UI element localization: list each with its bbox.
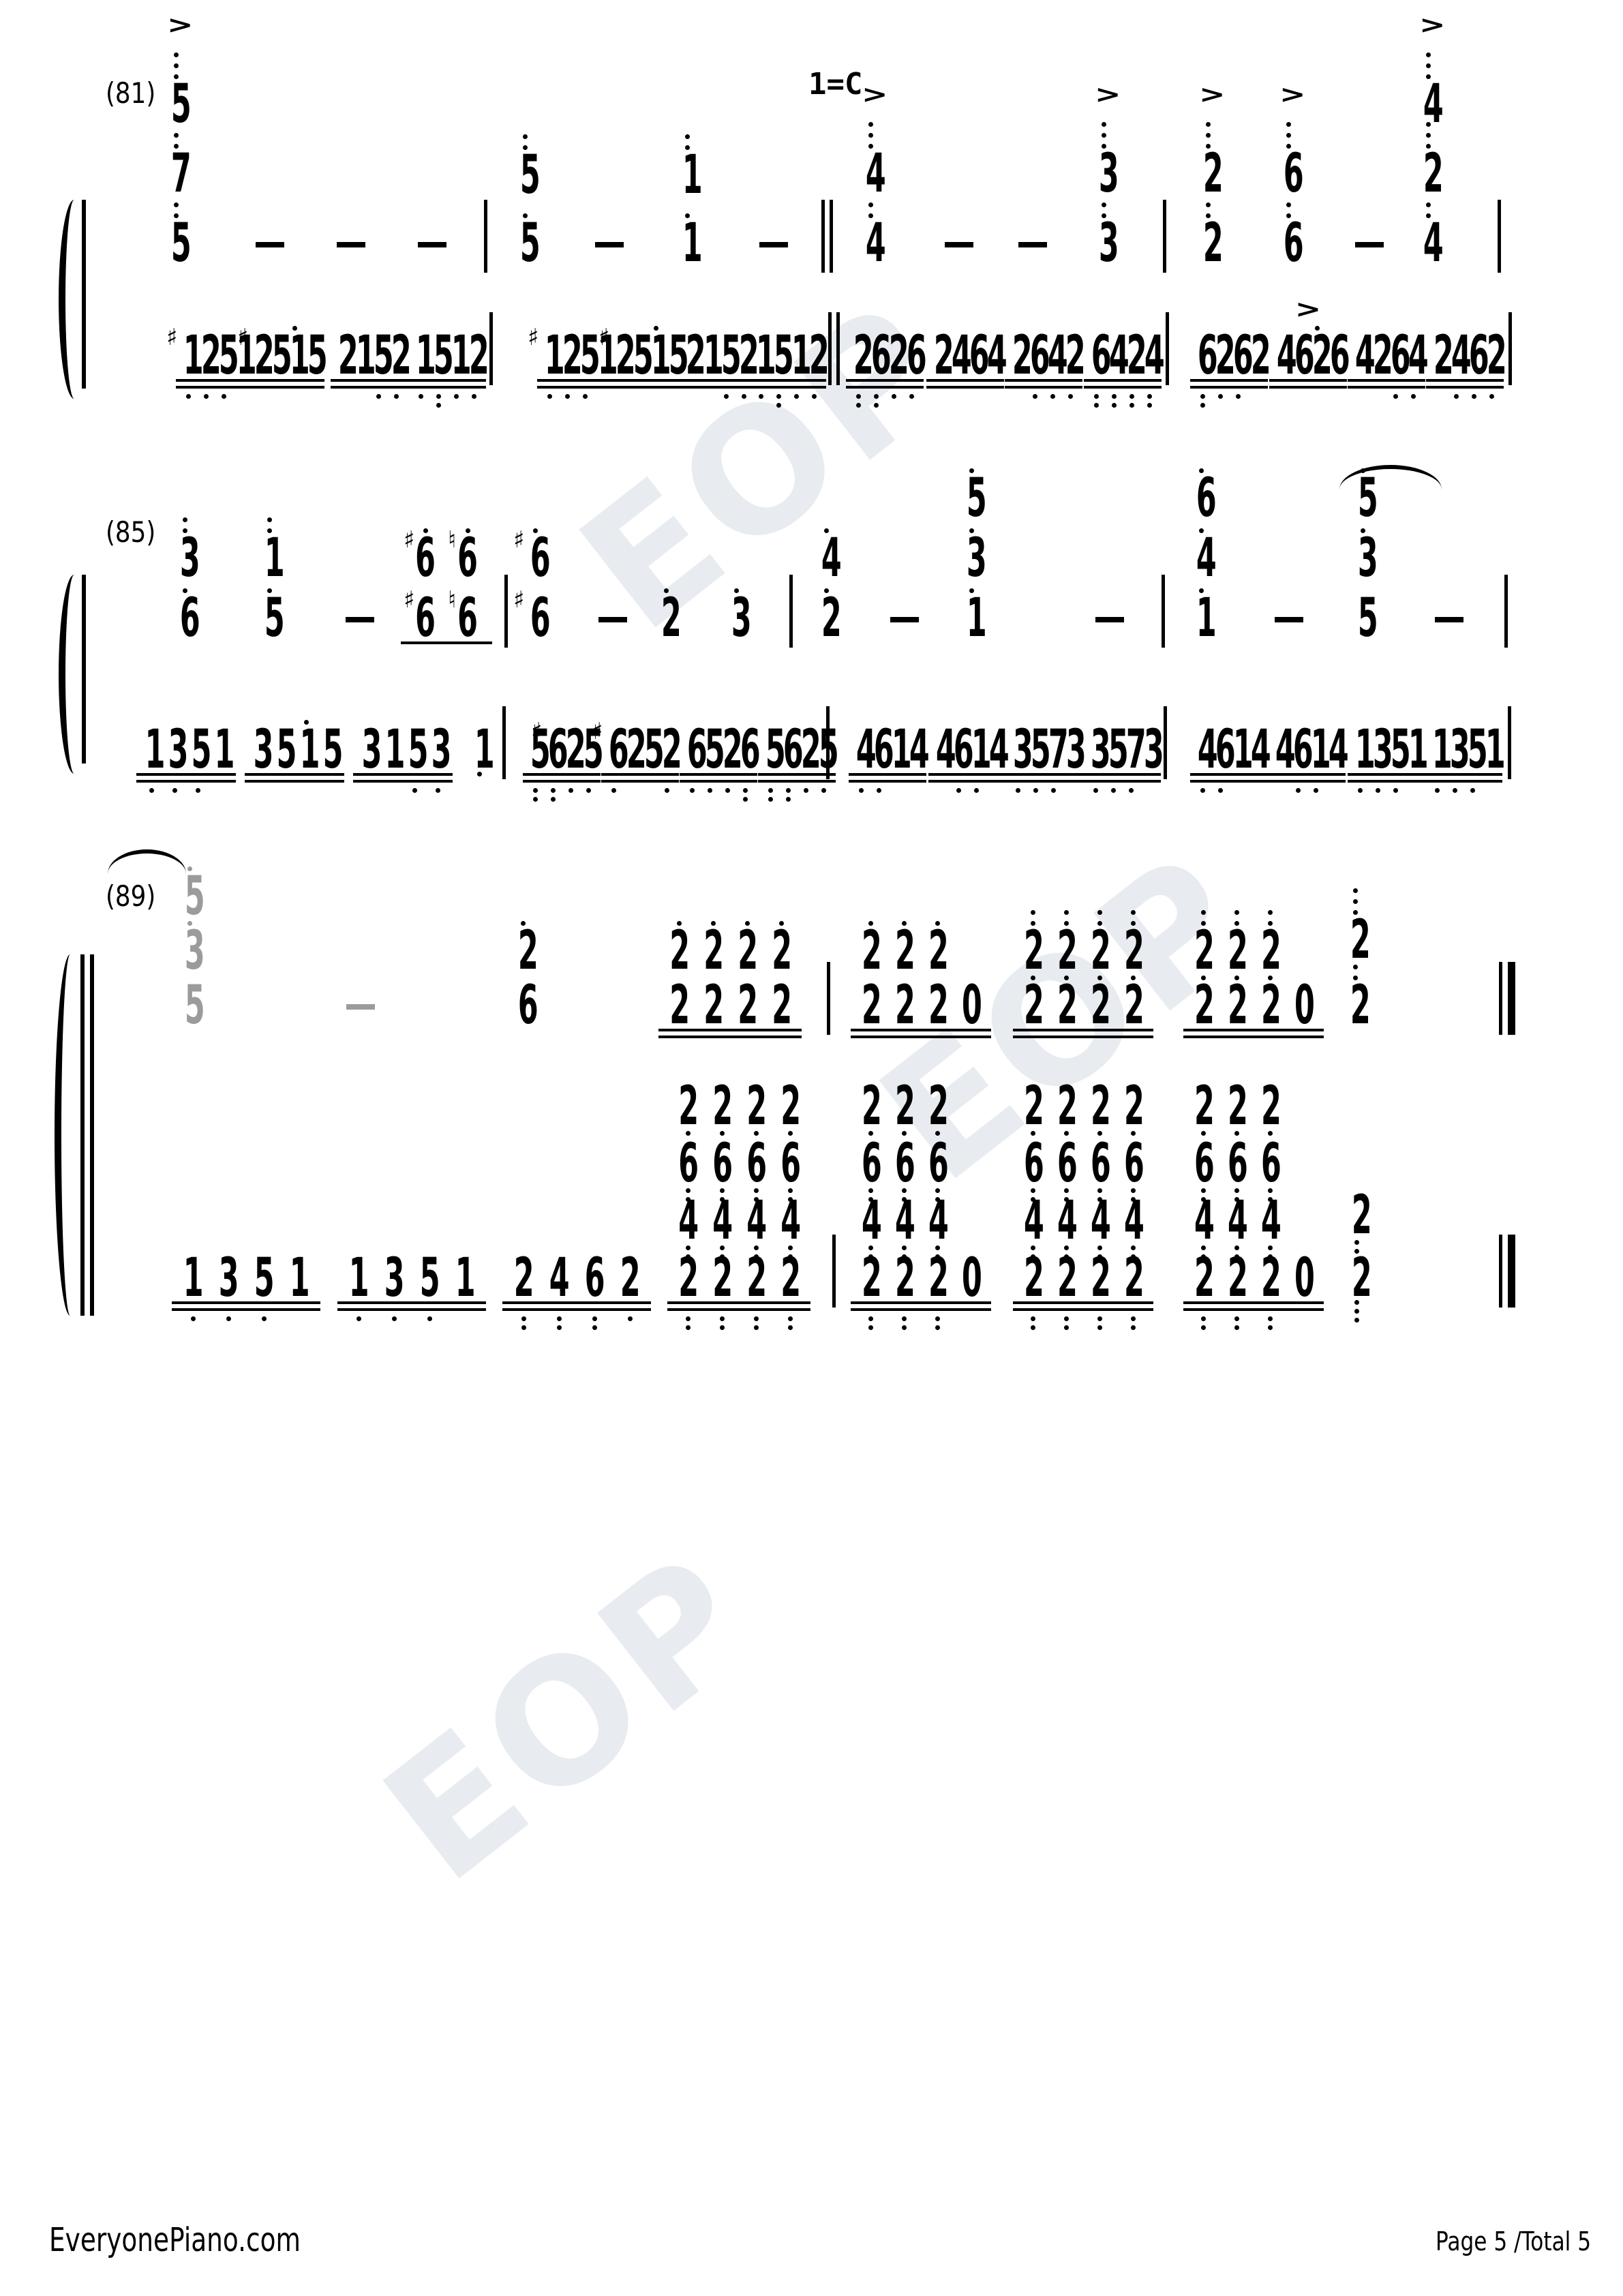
note: 4 xyxy=(862,223,879,262)
beam-underline-area xyxy=(928,769,1006,818)
note-digit: 6 xyxy=(780,1143,800,1183)
below-dots-row xyxy=(1190,394,1268,424)
octave-dot xyxy=(392,1316,397,1321)
octave-dot xyxy=(1199,528,1204,533)
octave-dot xyxy=(583,394,588,399)
octave-dot xyxy=(521,1316,526,1321)
octave-dot xyxy=(174,52,179,57)
below-dots-cell xyxy=(1062,788,1080,818)
below-dots-cell xyxy=(779,788,797,818)
note: 6 xyxy=(1187,1143,1220,1183)
note-column: 1 xyxy=(140,729,163,769)
octave-dot xyxy=(720,1316,725,1321)
octave-dot xyxy=(592,1316,597,1321)
note-column: 2642 xyxy=(1254,1086,1287,1297)
octave-dot xyxy=(547,394,552,399)
column-row: 42 xyxy=(817,538,835,637)
note: 4 xyxy=(1220,1200,1254,1240)
beam-line xyxy=(846,386,924,389)
beam-line xyxy=(1269,379,1347,382)
beam-line xyxy=(136,780,236,783)
note: 2 xyxy=(1429,335,1447,375)
octave-dot xyxy=(477,772,482,776)
column-row: 3153 xyxy=(357,729,449,769)
note-digit: 2 xyxy=(1434,335,1443,375)
note-digit: 2 xyxy=(518,931,528,970)
note-stack: 22> xyxy=(1199,153,1217,262)
beam-underline-area xyxy=(401,637,492,644)
octave-dot xyxy=(1286,122,1291,127)
below-dots-cell xyxy=(175,1316,211,1346)
note-stack: 44> xyxy=(862,153,879,262)
octave-dot xyxy=(1051,788,1056,793)
beam-line xyxy=(172,1301,320,1304)
beam-underline-area xyxy=(172,1297,320,1346)
beamed-group: 4614 xyxy=(852,729,923,769)
octave-dot xyxy=(1129,788,1134,793)
barline xyxy=(1508,312,1512,385)
note-column: 5 xyxy=(576,335,594,375)
column-row: 4264 xyxy=(1351,335,1422,375)
octave-dot xyxy=(1102,122,1106,127)
note-digit: 2 xyxy=(1091,931,1109,970)
beamed-group: 5625 xyxy=(761,729,832,769)
note-column: 4 xyxy=(1271,729,1289,769)
note-digit: 2 xyxy=(1024,985,1042,1025)
note: 4 xyxy=(1187,1200,1220,1240)
octave-dot xyxy=(1112,394,1117,399)
beam-line xyxy=(1190,773,1268,776)
note: 4 xyxy=(947,335,965,375)
below-dots-cell xyxy=(605,788,622,818)
column-row: 3573 xyxy=(1009,729,1080,769)
dash-glyph xyxy=(418,242,446,247)
beam-underline-area xyxy=(337,1297,486,1346)
note-digit: 3 xyxy=(1013,729,1022,769)
column-row: 44 xyxy=(862,153,879,262)
beam-line xyxy=(851,1036,991,1038)
beam-line xyxy=(1268,773,1346,776)
beam-underline-area xyxy=(678,375,756,424)
note-digit: 2 xyxy=(469,335,479,375)
note-digit: 1 xyxy=(1196,598,1206,637)
sharp-icon: ♯ xyxy=(166,326,177,349)
octave-dot xyxy=(568,788,573,793)
barline xyxy=(1508,706,1511,779)
note-column: 22 xyxy=(1220,931,1254,1025)
note-digit: 2 xyxy=(780,1258,800,1297)
note: 6 xyxy=(888,1143,921,1183)
note-digit: 5 xyxy=(272,335,282,375)
note: 4 xyxy=(1050,1200,1083,1240)
beam-line xyxy=(1013,1301,1153,1304)
octave-dot xyxy=(1102,133,1106,138)
beam-underline-area xyxy=(846,375,924,424)
note-stack: 424> xyxy=(1419,84,1437,262)
note-column: 2642 xyxy=(1187,1086,1220,1297)
beamed-group: 6424 xyxy=(1087,335,1158,375)
note-digit: 5 xyxy=(774,335,783,375)
note-column: 0 xyxy=(954,931,988,1025)
below-dots-cell xyxy=(429,394,447,424)
octave-dot xyxy=(376,394,381,399)
note-column: 424 xyxy=(1419,84,1437,262)
octave-dot xyxy=(685,213,690,218)
note-digit: 6 xyxy=(1330,335,1339,375)
below-dots-cell xyxy=(334,394,352,424)
note-column: ♯2 xyxy=(250,335,268,375)
beamed-group: ♯6252 xyxy=(605,729,676,769)
beam-line xyxy=(601,773,679,776)
beam-line xyxy=(601,780,679,783)
barline xyxy=(821,200,825,273)
beamed-group: 2642 xyxy=(1008,335,1079,375)
note: 1 xyxy=(260,538,278,577)
note-digit: 2 xyxy=(821,598,831,637)
below-dots-cell xyxy=(1123,394,1140,424)
beam-line xyxy=(1183,1301,1324,1304)
octave-dot xyxy=(868,213,873,218)
note: 1 xyxy=(341,1258,376,1297)
octave-dot xyxy=(1286,133,1291,138)
note-column: 15 xyxy=(260,538,278,637)
note-digit: 2 xyxy=(1024,931,1042,970)
below-dots-cell xyxy=(1083,1316,1117,1346)
note-digit: 4 xyxy=(866,223,875,262)
beam-line xyxy=(502,1308,651,1311)
note-column: 4 xyxy=(1324,729,1342,769)
note: 5 xyxy=(403,729,426,769)
beam-line xyxy=(353,773,453,776)
note-stack: 22 xyxy=(1348,1195,1365,1297)
octave-dot xyxy=(1131,1316,1136,1321)
note: 5 xyxy=(761,729,779,769)
below-dots-cell xyxy=(179,394,197,424)
beam-underline-area xyxy=(1183,1025,1324,1038)
note: 5 xyxy=(260,598,278,637)
octave-dot xyxy=(1393,788,1398,793)
below-dots-cell xyxy=(773,1316,807,1346)
beamed-group: 1512 xyxy=(752,335,823,375)
note-column: 4 xyxy=(983,335,1001,375)
system-start-barline xyxy=(90,954,94,1316)
beam-line xyxy=(680,773,757,776)
note: 3 xyxy=(1446,729,1463,769)
below-dots-cell xyxy=(640,788,658,818)
octave-dot xyxy=(523,213,528,218)
note: 1 xyxy=(352,335,369,375)
octave-dot xyxy=(1206,213,1211,218)
note-digit: 4 xyxy=(866,153,875,193)
below-dots-row xyxy=(678,394,756,424)
octave-dot xyxy=(436,788,440,793)
below-dots-cell xyxy=(232,394,250,424)
note: 2 xyxy=(696,931,730,970)
note: 5 xyxy=(186,729,209,769)
note-column: 6 xyxy=(1087,335,1105,375)
note: 5 xyxy=(303,335,321,375)
octave-dot xyxy=(902,1316,907,1321)
note: ♯2 xyxy=(611,335,629,375)
barline xyxy=(1508,1235,1515,1308)
octave-dot xyxy=(436,403,441,408)
barline xyxy=(830,200,833,273)
beam-line xyxy=(1348,386,1425,389)
beamed-group: 6262 xyxy=(1194,335,1264,375)
note-column: 3 xyxy=(248,729,271,769)
tie-slur xyxy=(108,849,186,875)
measure-number: (85) xyxy=(106,515,155,549)
octave-dot xyxy=(1031,910,1035,915)
octave-dot xyxy=(654,326,658,331)
note-digit: 6 xyxy=(1284,223,1293,262)
note-digit: 2 xyxy=(1024,1258,1042,1297)
note-stack: 66> xyxy=(1279,153,1297,262)
note-digit: 2 xyxy=(1203,153,1213,193)
system-start-barline xyxy=(82,200,86,389)
note: 2 xyxy=(817,598,835,637)
column-row: 535 xyxy=(1354,478,1371,637)
note-digit: 5 xyxy=(264,598,274,637)
column-row: 1351 xyxy=(1428,729,1499,769)
note-digit: 7 xyxy=(1126,729,1136,769)
note-digit: 6 xyxy=(1261,1143,1279,1183)
below-dots-cell xyxy=(211,1316,246,1346)
beam-line xyxy=(608,379,686,382)
beamed-group: 2464 xyxy=(930,335,1001,375)
beam-line xyxy=(680,780,757,783)
note-digit: 6 xyxy=(1469,335,1478,375)
note-digit: 6 xyxy=(874,729,883,769)
beam-line xyxy=(537,379,615,382)
column-row: 1351 xyxy=(341,1258,483,1297)
note-digit: 2 xyxy=(1057,985,1076,1025)
beam-underline-area xyxy=(408,375,486,424)
octave-dot xyxy=(183,588,187,593)
beamed-group: 2462 xyxy=(1429,335,1500,375)
note-column: 6 xyxy=(1211,729,1229,769)
note: 3 xyxy=(1095,223,1112,262)
note-digit: 5 xyxy=(374,335,383,375)
measure-number: (89) xyxy=(106,879,155,913)
accent-mark: > xyxy=(1279,82,1297,106)
beam-line xyxy=(658,1036,802,1038)
note-column: ♯6♯6 xyxy=(404,538,446,637)
note-digit: 2 xyxy=(1350,920,1360,959)
note: 2 xyxy=(773,1086,807,1126)
note-digit: 2 xyxy=(254,335,264,375)
note-digit: 6 xyxy=(1228,1143,1246,1183)
octave-dot xyxy=(804,788,808,793)
note-digit: 4 xyxy=(1423,84,1433,123)
note: 2 xyxy=(805,335,823,375)
note-digit: 1 xyxy=(290,1258,309,1297)
below-dots-row xyxy=(523,788,601,818)
note-digit: 2 xyxy=(669,931,688,970)
below-dots-cell xyxy=(197,394,215,424)
octave-dot xyxy=(1268,921,1273,926)
note-column: 6 xyxy=(1386,335,1404,375)
below-dots-cell xyxy=(1104,788,1122,818)
beam-underline-area xyxy=(1084,375,1162,424)
beamed-group: ♯6♯6♮6♮6 xyxy=(404,538,489,637)
note-digit: 1 xyxy=(971,729,981,769)
note: 2 xyxy=(1187,931,1220,970)
octave-dot xyxy=(1453,788,1457,793)
beam-underline-area xyxy=(1190,375,1268,424)
beam-line xyxy=(1425,780,1502,783)
note-digit: 6 xyxy=(1215,729,1225,769)
note: 2 xyxy=(1199,223,1217,262)
note: 2 xyxy=(1083,931,1117,970)
note: 5 xyxy=(701,729,718,769)
octave-dot xyxy=(877,788,881,793)
note-column: 4 xyxy=(1194,729,1211,769)
note-column: 2642 xyxy=(1016,1086,1050,1297)
note-digit: 7 xyxy=(171,153,181,193)
beam-line xyxy=(926,386,1004,389)
octave-dot xyxy=(1296,788,1301,793)
note-digit: 2 xyxy=(1261,1086,1279,1126)
octave-dot xyxy=(824,588,829,593)
octave-dot xyxy=(1426,63,1431,68)
note-digit: 2 xyxy=(723,729,732,769)
note-digit: 6 xyxy=(1124,1143,1142,1183)
note-digit: 6 xyxy=(969,335,979,375)
note: 2 xyxy=(885,335,902,375)
note-digit: 2 xyxy=(1373,335,1382,375)
note: 5 xyxy=(1354,598,1371,637)
note: 2 xyxy=(1117,985,1150,1025)
column-row: 4614 xyxy=(932,729,1003,769)
octave-dot xyxy=(267,588,272,593)
column-row: 641 xyxy=(1192,478,1210,637)
octave-dot xyxy=(1354,1318,1359,1323)
dash-glyph xyxy=(890,617,919,622)
note-digit: 2 xyxy=(662,729,671,769)
note: 2 xyxy=(1050,1258,1083,1297)
note: 1 xyxy=(1481,729,1499,769)
note: ♯2 xyxy=(250,335,268,375)
note: 1 xyxy=(294,729,318,769)
octave-dot xyxy=(1068,394,1073,399)
below-dots-cell xyxy=(815,788,832,818)
note-column: 6 xyxy=(870,729,888,769)
note-digit: 3 xyxy=(967,538,976,577)
column-row: 5♯625 xyxy=(526,729,597,769)
note-column: 1 xyxy=(699,335,717,375)
column-row: 2152 xyxy=(334,335,405,375)
note-digit: 2 xyxy=(1091,1258,1109,1297)
note: 2 xyxy=(888,931,921,970)
column-row: 2 xyxy=(657,598,675,637)
octave-dot xyxy=(1286,213,1291,218)
octave-dot xyxy=(1268,1316,1273,1321)
note-column: 1 xyxy=(341,1258,376,1297)
note: 6 xyxy=(1279,153,1297,193)
note: 1 xyxy=(678,223,696,262)
octave-dot xyxy=(1354,1309,1359,1314)
note-digit: 2 xyxy=(703,985,723,1025)
note: 1 xyxy=(412,335,429,375)
note-column: 5 xyxy=(429,335,447,375)
note-digit: 5 xyxy=(765,729,775,769)
note-digit: 4 xyxy=(1048,335,1057,375)
below-dots-row xyxy=(1005,394,1082,424)
note: 4 xyxy=(983,335,1001,375)
note: 6 xyxy=(1220,1143,1254,1183)
note-digit: 3 xyxy=(185,931,194,970)
note-stack: 36 xyxy=(176,538,194,637)
note: 3 xyxy=(1369,729,1386,769)
octave-dot xyxy=(196,788,200,793)
below-dots-cell xyxy=(867,394,885,424)
below-dots-cell xyxy=(577,1316,612,1346)
octave-dot xyxy=(1064,1325,1069,1330)
beam-line xyxy=(176,379,254,382)
note: ♯6 xyxy=(404,538,446,577)
note: 2 xyxy=(1483,335,1500,375)
note: 5 xyxy=(369,335,387,375)
column-row: 55 xyxy=(516,155,534,262)
octave-dot xyxy=(677,921,682,926)
note-column: 535 xyxy=(181,876,198,1025)
octave-dot xyxy=(1286,202,1291,207)
octave-dot xyxy=(686,1325,691,1330)
note: 5 xyxy=(1463,729,1481,769)
octave-dot xyxy=(1426,52,1431,57)
below-dots-cell xyxy=(1140,788,1157,818)
below-dots-cell xyxy=(412,394,429,424)
note: 5 xyxy=(167,84,185,123)
octave-dot xyxy=(1200,403,1205,408)
octave-dot xyxy=(204,394,209,399)
note-stack: 531 xyxy=(962,478,980,637)
note: 6 xyxy=(705,1143,739,1183)
note: 4 xyxy=(1044,335,1061,375)
note-digit: 5 xyxy=(408,729,421,769)
column-row: 22 xyxy=(1346,920,1364,1025)
note-digit: 2 xyxy=(1124,931,1142,970)
octave-dot xyxy=(523,134,528,139)
note-column: 3 xyxy=(357,729,380,769)
octave-dot xyxy=(412,788,417,793)
octave-dot xyxy=(1470,788,1475,793)
octave-dot xyxy=(743,797,748,802)
beamed-group: 4614 xyxy=(1271,729,1342,769)
beam-underline-area xyxy=(758,769,836,818)
octave-dot xyxy=(1097,976,1102,980)
octave-dot xyxy=(1315,326,1320,331)
note: 1 xyxy=(1307,729,1324,769)
sharp-icon: ♯ xyxy=(513,528,524,552)
beam-underline-area xyxy=(537,375,615,424)
note: ♯1 xyxy=(179,335,197,375)
octave-dot xyxy=(1064,976,1069,980)
note: 2 xyxy=(506,1258,541,1297)
octave-dot xyxy=(1268,1325,1273,1330)
octave-dot xyxy=(868,122,873,127)
octave-dot xyxy=(776,403,781,408)
below-dots-cell xyxy=(1247,394,1264,424)
octave-dot xyxy=(1097,1316,1102,1321)
note-digit: 4 xyxy=(780,1200,800,1240)
note-digit: 2 xyxy=(1350,985,1360,1025)
below-dots-row xyxy=(1426,394,1504,424)
beam-line xyxy=(176,386,254,389)
note-column: 4 xyxy=(1105,335,1123,375)
beam-line xyxy=(1183,1308,1324,1311)
